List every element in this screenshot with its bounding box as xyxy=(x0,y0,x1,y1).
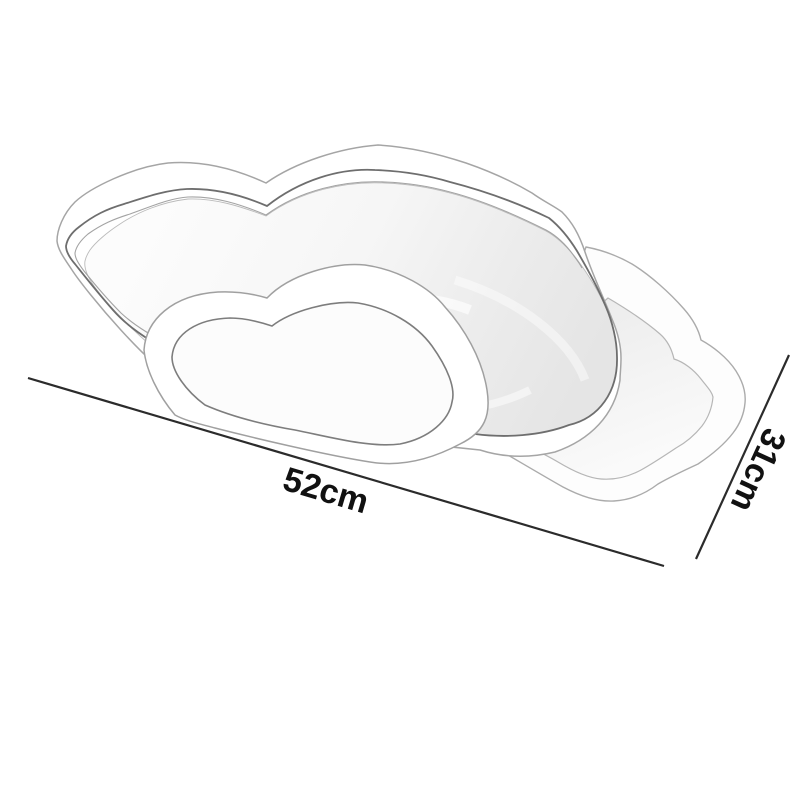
svg-text:31cm: 31cm xyxy=(723,423,794,518)
svg-text:52cm: 52cm xyxy=(279,460,373,521)
